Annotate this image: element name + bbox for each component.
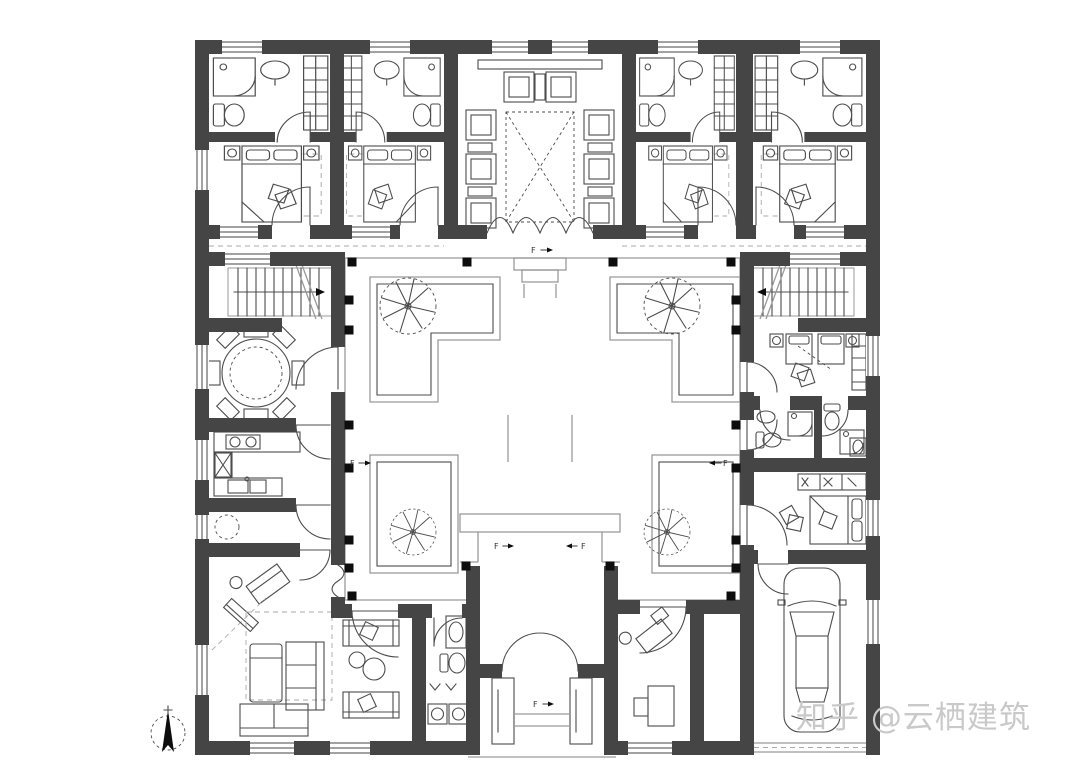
entrance-porch <box>468 678 616 757</box>
floor-plan-page: F F F F F F 知乎 @云栖建筑 <box>0 0 1080 762</box>
sink <box>449 622 463 642</box>
armchair <box>636 619 672 653</box>
central-hall <box>466 60 614 228</box>
level-marker: F <box>581 542 586 551</box>
utility-room <box>215 515 239 539</box>
window <box>352 225 390 239</box>
toilet <box>763 433 781 447</box>
porch-pier <box>492 678 514 744</box>
entry-steps <box>468 714 616 757</box>
window <box>628 741 672 755</box>
window <box>790 252 840 266</box>
courtyard-columns <box>345 258 741 601</box>
window <box>195 150 209 190</box>
study-corner <box>228 552 290 611</box>
bedroom-right-2 <box>779 474 866 544</box>
level-marker: F <box>531 246 536 255</box>
planting-bed-bottom-right <box>652 455 740 573</box>
kitchen-sink <box>228 480 248 493</box>
bedroom-suite-3 <box>636 56 736 222</box>
lounge-nook <box>343 620 399 718</box>
tv-cabinet <box>224 598 259 631</box>
bedroom-suite-4 <box>753 56 866 222</box>
window <box>220 225 258 239</box>
living-rug <box>246 612 332 700</box>
door-kitchen <box>296 425 330 459</box>
living-room <box>212 598 332 736</box>
door-utility <box>296 505 330 539</box>
cooktop <box>226 435 260 449</box>
window <box>250 741 294 755</box>
round-table <box>363 658 385 680</box>
courtyard-edge <box>345 258 740 600</box>
tree-icon <box>644 509 690 555</box>
desk <box>648 686 674 726</box>
window <box>866 336 880 376</box>
window <box>552 40 588 54</box>
entry-double-doors <box>502 633 578 671</box>
tree-icon <box>390 509 436 555</box>
dining-room <box>208 325 304 421</box>
planting-bed-top-left <box>370 277 500 402</box>
level-marker: F <box>533 700 538 709</box>
window <box>492 40 528 54</box>
study-room <box>617 604 679 726</box>
bedroom-right-1 <box>770 334 866 390</box>
side-chairs-right <box>584 110 614 228</box>
door-study-corner <box>300 550 330 580</box>
side-chairs-left <box>466 110 496 228</box>
porch-pier <box>570 678 592 744</box>
entrance-portal <box>460 514 620 562</box>
staircase-left <box>228 265 332 319</box>
armchair <box>791 363 809 381</box>
washer <box>428 704 447 724</box>
window <box>330 741 370 755</box>
window <box>195 515 209 539</box>
floor-plan-canvas: F F F F F F <box>0 0 1080 762</box>
bathrooms-right <box>756 404 866 456</box>
bedroom-suite-1 <box>209 56 330 222</box>
tea-table <box>535 74 545 100</box>
window <box>646 225 684 239</box>
chair <box>228 574 245 591</box>
dryer <box>449 704 468 724</box>
staircase-right <box>750 265 854 319</box>
chair <box>634 698 648 716</box>
planting-bed-top-right <box>610 277 740 402</box>
double-door-corridor <box>332 565 344 597</box>
tree-icon <box>380 278 436 334</box>
single-bed <box>818 334 844 364</box>
window <box>222 40 262 54</box>
window <box>806 225 844 239</box>
water-heater <box>215 515 239 539</box>
hall-steps <box>514 258 566 298</box>
console-table <box>478 60 602 69</box>
folding-doors-hall <box>487 218 593 234</box>
armchair <box>546 72 576 102</box>
armchair <box>504 72 534 102</box>
window <box>866 500 880 536</box>
window <box>658 40 698 54</box>
level-marker: F <box>350 459 355 468</box>
courtyard-path <box>508 415 572 462</box>
window <box>866 600 880 644</box>
bedroom-suite-2 <box>339 56 444 222</box>
single-bed <box>786 334 812 364</box>
courtyard <box>345 258 740 600</box>
door-dining <box>296 347 338 389</box>
toilet <box>825 412 839 430</box>
window <box>225 252 270 266</box>
round-table <box>349 652 365 668</box>
desk <box>246 564 290 604</box>
sliding-wardrobe <box>798 474 866 490</box>
window <box>195 345 209 389</box>
kitchen <box>214 432 300 496</box>
toilet <box>449 653 465 673</box>
level-marker: F <box>494 542 499 551</box>
window <box>800 40 840 54</box>
window <box>370 40 410 54</box>
level-marker: F <box>723 459 728 468</box>
watermark: 知乎 @云栖建筑 <box>796 692 1080 737</box>
round-dining-table <box>222 339 290 407</box>
chaise <box>250 644 282 702</box>
window <box>195 645 209 695</box>
window <box>195 440 209 480</box>
tree-icon <box>644 278 700 334</box>
bed <box>810 496 866 544</box>
door-bedroom-r1 <box>747 362 777 392</box>
hall-rug <box>506 112 574 222</box>
level-markers: F F F F F F <box>350 246 728 709</box>
north-arrow-icon <box>151 706 185 752</box>
